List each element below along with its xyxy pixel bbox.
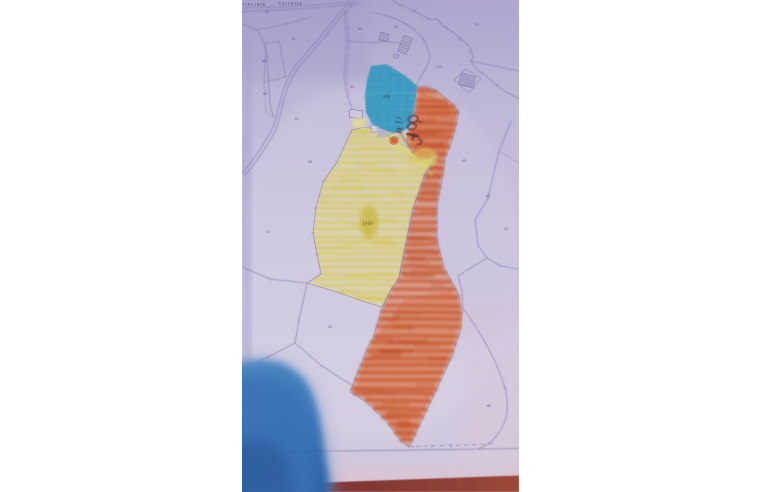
svg-text:80: 80 [265, 10, 269, 14]
svg-text:85: 85 [462, 159, 466, 163]
svg-text:66: 66 [486, 194, 490, 198]
svg-text:44: 44 [504, 227, 508, 231]
svg-text:1420: 1420 [363, 221, 374, 226]
svg-text:218: 218 [436, 65, 442, 69]
svg-text:87: 87 [292, 37, 296, 41]
svg-text:95: 95 [263, 92, 267, 96]
svg-text:48: 48 [394, 25, 398, 29]
svg-text:48: 48 [358, 27, 362, 31]
svg-text:61: 61 [295, 117, 299, 121]
svg-text:86: 86 [262, 59, 266, 63]
svg-text:90: 90 [350, 85, 354, 89]
svg-text:58: 58 [308, 160, 312, 164]
svg-text:52: 52 [475, 23, 479, 27]
svg-text:92: 92 [328, 325, 332, 329]
svg-text:93: 93 [266, 230, 270, 234]
svg-text:206: 206 [383, 94, 391, 99]
svg-text:88: 88 [487, 404, 491, 408]
